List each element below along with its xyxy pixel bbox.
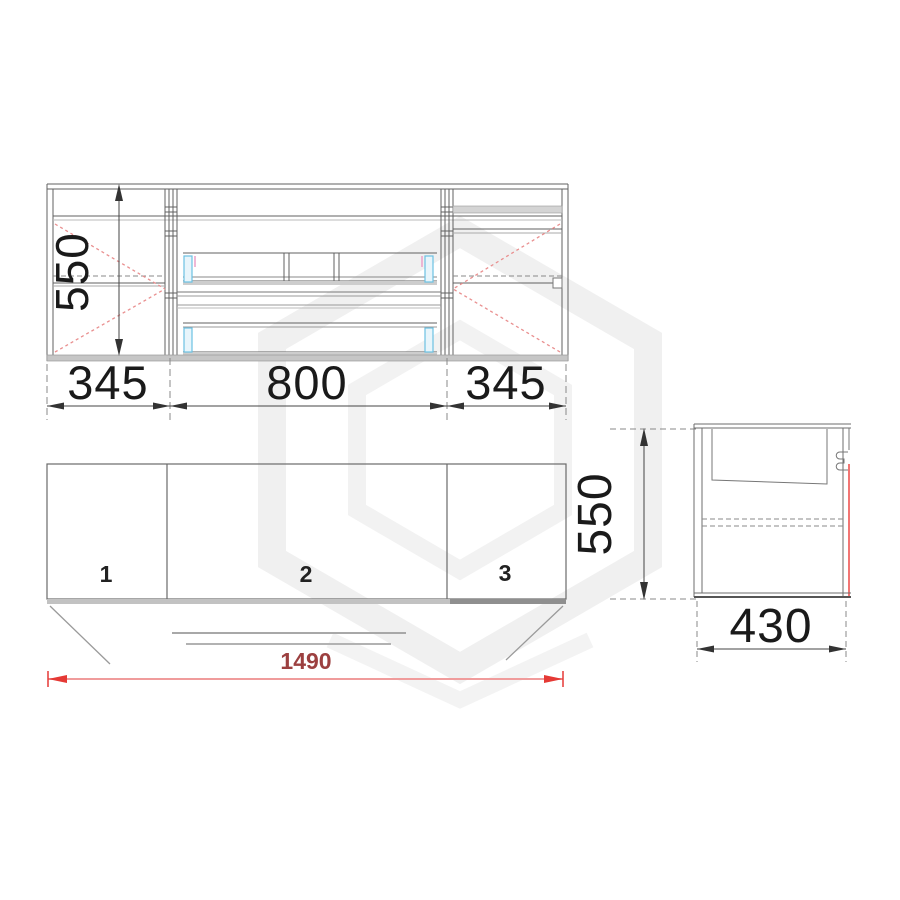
basin-cutout — [712, 429, 827, 484]
door-label-1: 1 — [100, 561, 113, 587]
dim-label-side-height: 550 — [569, 472, 622, 555]
watermark-logo — [272, 232, 648, 700]
door-label-3: 3 — [499, 560, 512, 586]
dim-label-overall-width: 1490 — [280, 648, 331, 674]
dim-label-depth: 430 — [729, 600, 812, 653]
dim-row-345-800-345: 345 800 345 — [47, 356, 566, 420]
dim-label-width-right: 345 — [465, 356, 546, 409]
divider-left — [165, 189, 177, 355]
dim-430-depth: 430 — [697, 600, 846, 662]
drawing-canvas: 550 345 800 345 — [0, 0, 900, 900]
side-view-dimensions: 550 430 — [569, 428, 846, 662]
dim-label-top-height: 550 — [46, 232, 98, 312]
dim-label-width-middle: 800 — [266, 356, 347, 409]
handle-icon — [836, 452, 848, 470]
dim-550-top: 550 — [46, 184, 123, 356]
top-view-dimensions: 550 345 800 345 — [46, 184, 566, 420]
vanity-technical-drawing: 550 345 800 345 — [0, 0, 900, 900]
dim-label-width-left: 345 — [67, 356, 148, 409]
door-label-2: 2 — [300, 561, 313, 587]
side-view — [694, 424, 851, 597]
